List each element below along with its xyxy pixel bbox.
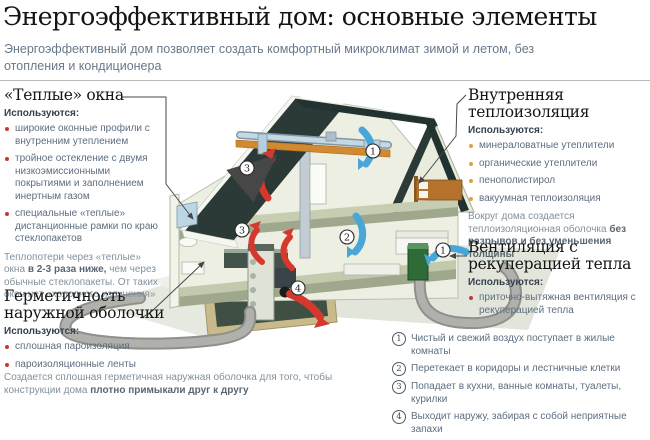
- svg-text:1: 1: [370, 147, 376, 158]
- step-number-badge: 4: [392, 410, 406, 424]
- step-number-badge: 1: [392, 332, 406, 346]
- marker-floor-exhaust: 3: [235, 223, 249, 237]
- section-title: «Теплые» окна: [4, 87, 160, 104]
- svg-text:4: 4: [295, 284, 301, 295]
- page-subtitle: Энергоэффективный дом позволяет создать …: [4, 41, 564, 75]
- vertical-duct: [300, 150, 310, 258]
- uses-label: Используются:: [4, 108, 160, 119]
- section-warm-windows: «Теплые» окна Используются: широкие окон…: [4, 87, 160, 302]
- list-item: пенополистирол: [468, 175, 646, 188]
- uses-label: Используются:: [4, 326, 172, 337]
- airflow-step: 3 Попадает в кухни, ванные комнаты, туал…: [392, 380, 648, 406]
- airflow-step: 2 Перетекает в коридоры и лестничные кле…: [392, 362, 648, 376]
- bullet-list: широкие оконные профили с внутренним уте…: [4, 123, 160, 246]
- door: [310, 164, 326, 204]
- section-sealing: Герметичность наружной оболочки Использу…: [4, 288, 172, 376]
- svg-text:2: 2: [344, 233, 350, 244]
- marker-attic-exhaust: 3: [240, 161, 254, 175]
- airflow-step: 4 Выходит наружу, забирая с собой неприя…: [392, 410, 648, 436]
- list-item: тройное остекление с двумя низкоэмиссион…: [4, 153, 160, 203]
- step-text: Попадает в кухни, ванные комнаты, туалет…: [411, 380, 648, 406]
- svg-text:1: 1: [440, 246, 446, 257]
- air-intake-unit: [408, 243, 428, 280]
- bullet-list: минераловатные утеплители органические у…: [468, 140, 646, 205]
- section-title: Герметичность наружной оболочки: [4, 288, 172, 322]
- list-item: органические утеплители: [468, 158, 646, 171]
- section-insulation: Внутренняя теплоизоляция Используются: м…: [468, 87, 646, 261]
- sealing-note: Создается сплошная герметичная наружная …: [4, 372, 344, 397]
- bullet-list: сплошная пароизоляция пароизоляционные л…: [4, 341, 172, 371]
- marker-floor-supply: 2: [340, 230, 354, 244]
- table: [344, 264, 400, 275]
- section-title: Вентиляция с рекуперацией тепла: [468, 239, 648, 273]
- list-item: вакуумная теплоизоляция: [468, 193, 646, 206]
- step-text: Перетекает в коридоры и лестничные клетк…: [411, 362, 620, 375]
- list-item: сплошная пароизоляция: [4, 341, 172, 354]
- step-text: Выходит наружу, забирая с собой неприятн…: [411, 410, 648, 436]
- step-text: Чистый и свежий воздух поступает в жилые…: [411, 332, 648, 358]
- step-number-badge: 2: [392, 362, 406, 376]
- warm-window: [177, 202, 197, 228]
- uses-label: Используются:: [468, 125, 646, 136]
- section-title: Внутренняя теплоизоляция: [468, 87, 646, 121]
- marker-basement-out: 4: [291, 281, 305, 295]
- page-title: Энергоэффективный дом: основные элементы: [3, 2, 649, 31]
- airflow-steps-list: 1 Чистый и свежий воздух поступает в жил…: [392, 332, 648, 440]
- header-divider: [0, 80, 650, 81]
- step-number-badge: 3: [392, 380, 406, 394]
- bullet-list: приточно-вытяжная вентиляция с рекуперац…: [468, 292, 648, 317]
- marker-attic-supply: 1: [366, 144, 380, 158]
- list-item: широкие оконные профили с внутренним уте…: [4, 123, 160, 148]
- section-ventilation: Вентиляция с рекуперацией тепла Использу…: [468, 239, 648, 322]
- svg-text:3: 3: [239, 226, 245, 237]
- list-item: приточно-вытяжная вентиляция с рекуперац…: [468, 292, 648, 317]
- list-item: специальные «теплые» дистанционные рамки…: [4, 208, 160, 246]
- svg-text:3: 3: [244, 164, 250, 175]
- list-item: пароизоляционные ленты: [4, 359, 172, 372]
- marker-intake: 1: [436, 243, 450, 257]
- airflow-step: 1 Чистый и свежий воздух поступает в жил…: [392, 332, 648, 358]
- list-item: минераловатные утеплители: [468, 140, 646, 153]
- uses-label: Используются:: [468, 277, 648, 288]
